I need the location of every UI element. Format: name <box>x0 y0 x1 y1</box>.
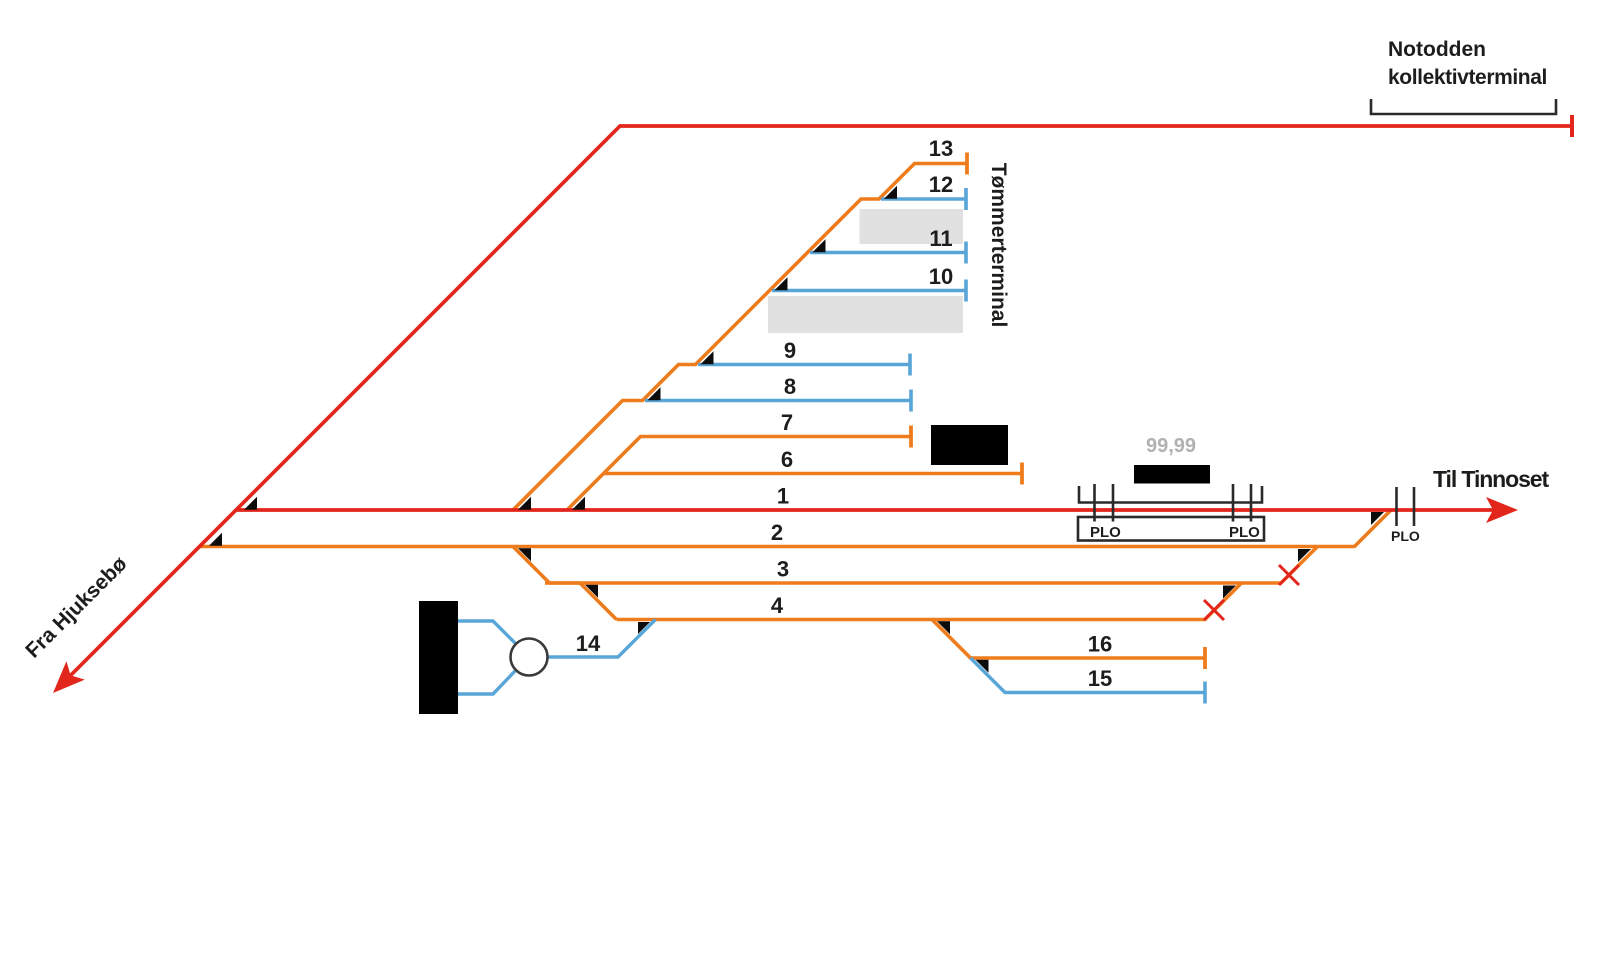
svg-text:8: 8 <box>784 374 796 399</box>
svg-text:PLO: PLO <box>1391 528 1420 544</box>
svg-text:16: 16 <box>1088 632 1112 657</box>
svg-text:9: 9 <box>784 338 796 363</box>
svg-text:4: 4 <box>771 593 784 618</box>
svg-text:Til Tinnoset: Til Tinnoset <box>1433 466 1549 492</box>
svg-text:10: 10 <box>929 264 953 289</box>
svg-text:14: 14 <box>576 631 601 656</box>
svg-text:2: 2 <box>771 520 783 545</box>
svg-text:PLO: PLO <box>1229 524 1260 541</box>
svg-text:Notodden: Notodden <box>1388 38 1486 61</box>
svg-text:PLO: PLO <box>1090 524 1121 541</box>
svg-text:99,99: 99,99 <box>1146 435 1196 457</box>
svg-text:11: 11 <box>929 226 952 251</box>
svg-text:kollektivterminal: kollektivterminal <box>1388 66 1547 89</box>
svg-text:13: 13 <box>929 136 953 161</box>
svg-text:Tømmerterminal: Tømmerterminal <box>987 163 1010 328</box>
svg-text:12: 12 <box>929 172 953 197</box>
svg-text:7: 7 <box>781 410 793 435</box>
svg-text:3: 3 <box>777 557 789 582</box>
svg-text:6: 6 <box>781 447 793 472</box>
svg-text:15: 15 <box>1088 666 1112 691</box>
svg-text:1: 1 <box>777 484 789 509</box>
